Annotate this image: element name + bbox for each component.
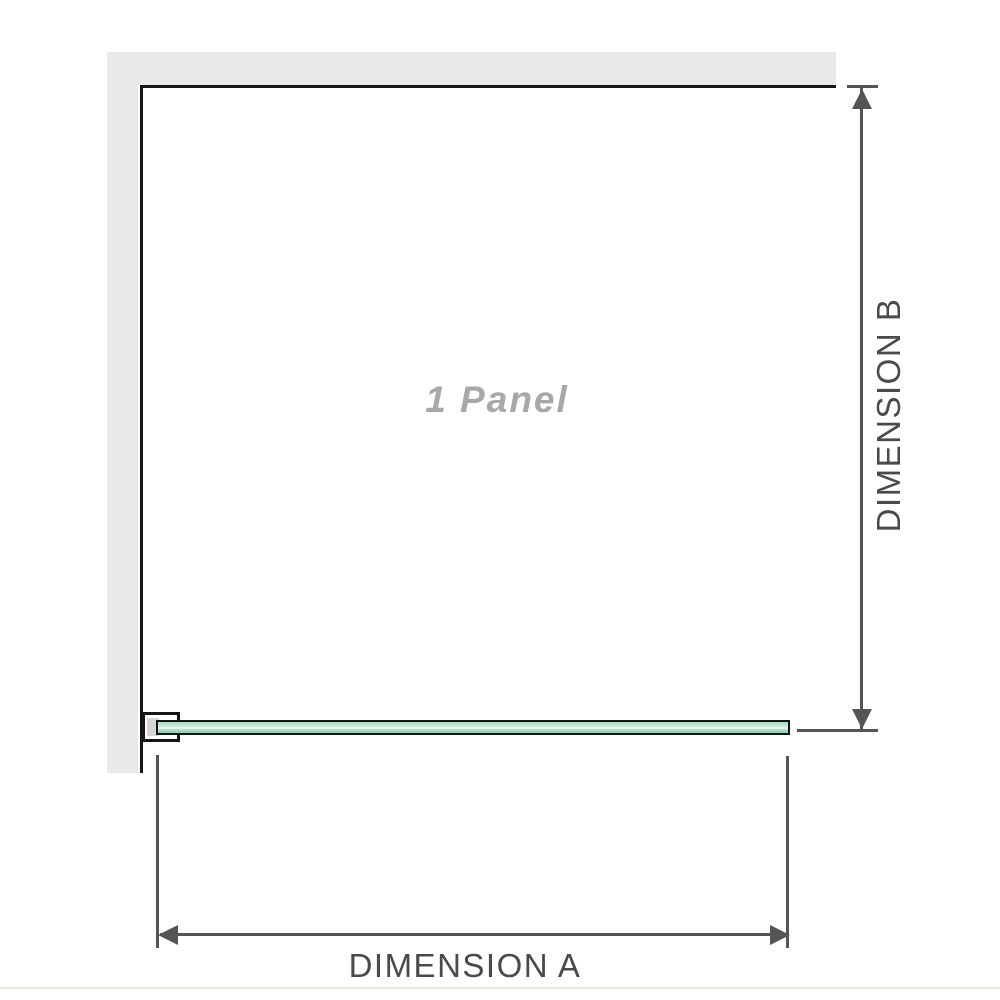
page-divider xyxy=(0,987,1000,989)
dimension-b-line xyxy=(860,88,863,730)
arrow-left-icon xyxy=(158,925,178,945)
wall-top xyxy=(107,52,836,85)
glass-panel xyxy=(156,720,790,735)
panel-dimension-diagram: 1 Panel DIMENSION B DIMENSION A xyxy=(0,0,1000,1000)
arrow-up-icon xyxy=(852,89,872,109)
panel-count-label: 1 Panel xyxy=(297,375,697,425)
frame-top-line xyxy=(140,85,836,88)
dimension-b-bottom-tick xyxy=(797,729,878,732)
frame-left-line xyxy=(140,85,143,773)
dimension-b-label: DIMENSION B xyxy=(867,215,911,615)
arrow-right-icon xyxy=(770,925,790,945)
arrow-down-icon xyxy=(852,709,872,729)
dimension-a-left-extension-line xyxy=(156,755,159,948)
dimension-a-right-extension-line xyxy=(786,756,789,948)
wall-left xyxy=(107,52,138,773)
dimension-a-label: DIMENSION A xyxy=(265,946,665,986)
dimension-a-line xyxy=(160,933,788,936)
